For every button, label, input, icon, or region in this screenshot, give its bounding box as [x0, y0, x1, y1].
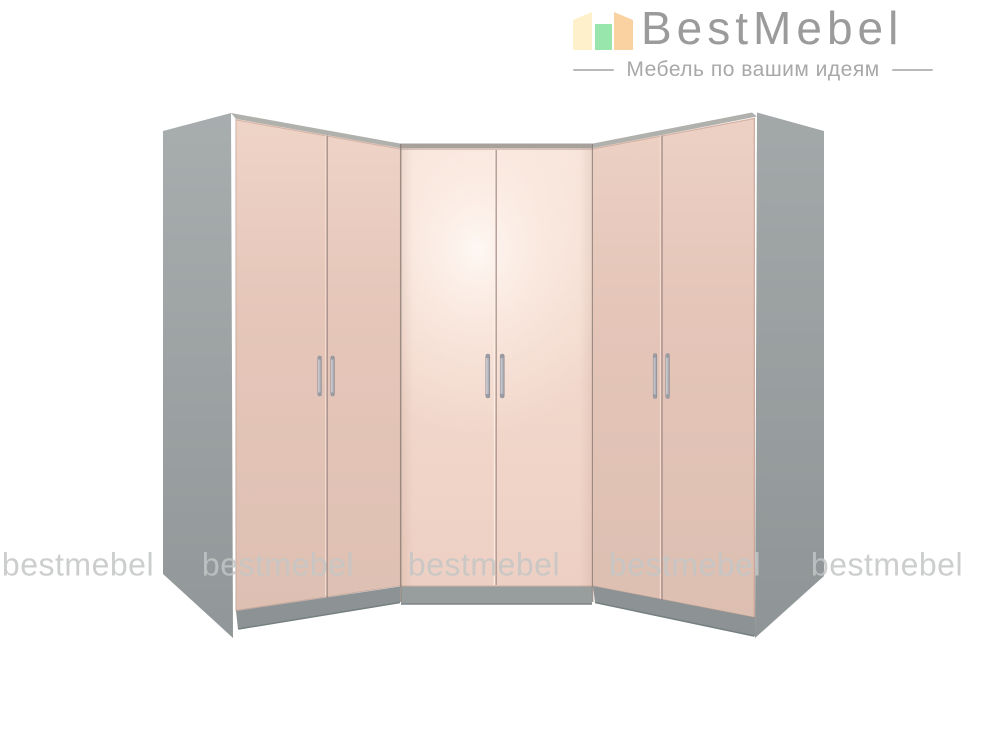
handle-cap [486, 355, 490, 359]
watermark-text: bestmebel [609, 547, 761, 584]
right-wardrobe-doors [593, 118, 755, 619]
handle-cap [486, 394, 490, 398]
watermark-text: bestmebel [202, 547, 354, 584]
handle-cap [653, 394, 657, 398]
handle-cap [500, 394, 504, 398]
handle-cap [500, 355, 504, 359]
watermark-text: bestmebel [811, 547, 963, 584]
right-door-handle-b [666, 354, 670, 399]
watermark-text: bestmebel [408, 547, 560, 584]
corner-door-handle-a [486, 354, 490, 398]
right-door-handle-a [653, 354, 657, 399]
handle-cap [331, 392, 335, 396]
left-door-handle-a [318, 356, 322, 396]
corner-door-handle-b [500, 354, 504, 398]
handle-cap [653, 354, 657, 358]
corner-wardrobe-top [400, 144, 593, 149]
left-door-handle-b [331, 356, 335, 396]
handle-cap [666, 394, 670, 398]
corner-wardrobe-plinth [401, 587, 592, 605]
handle-cap [318, 356, 322, 360]
handle-cap [331, 356, 335, 360]
handle-cap [318, 392, 322, 396]
product-image[interactable]: BestMebel Мебель по вашим идеям [0, 0, 1000, 750]
wardrobe-render [0, 0, 1000, 750]
watermark-text: bestmebel [2, 547, 154, 584]
handle-cap [666, 354, 670, 358]
